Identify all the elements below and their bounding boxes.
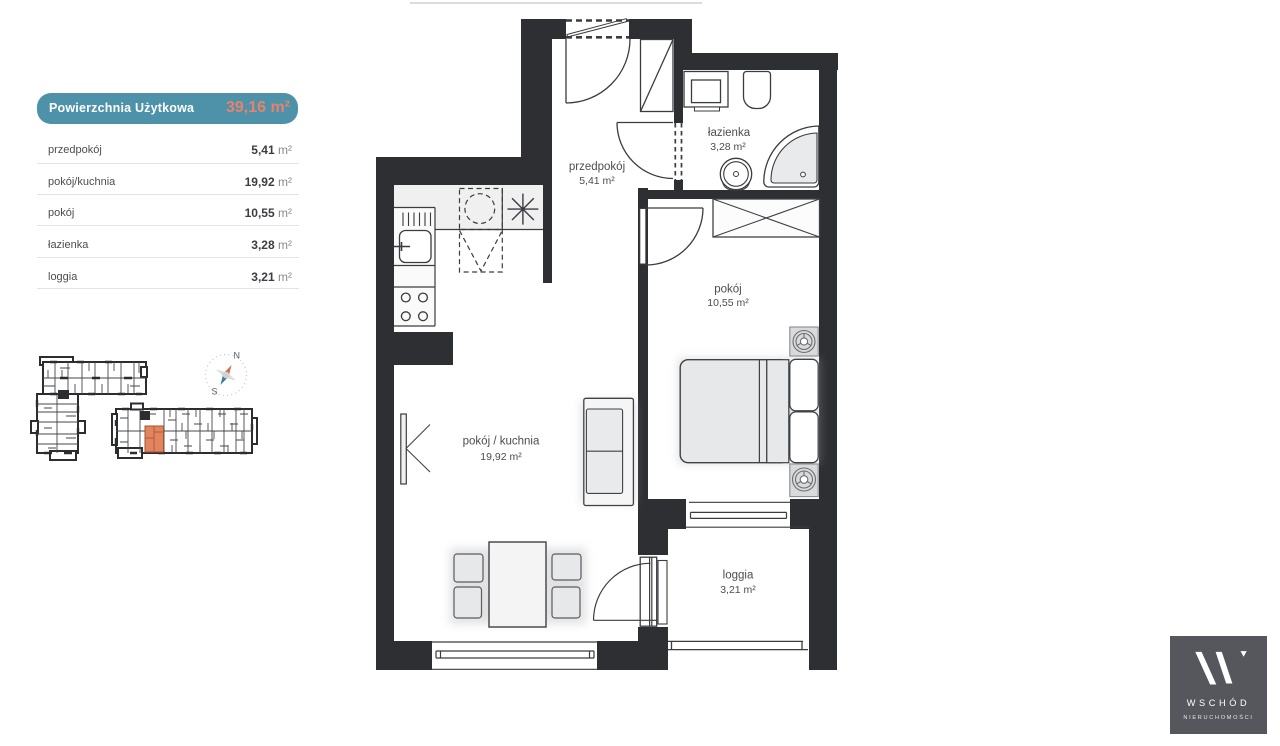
svg-text:S: S bbox=[212, 387, 218, 397]
svg-text:3,28 m²: 3,28 m² bbox=[710, 141, 746, 153]
svg-text:przedpokój: przedpokój bbox=[569, 161, 625, 173]
svg-text:10,55 m²: 10,55 m² bbox=[707, 297, 749, 309]
svg-text:łazienka: łazienka bbox=[708, 127, 751, 139]
svg-text:loggia: loggia bbox=[723, 570, 754, 582]
svg-text:19,92 m²: 19,92 m² bbox=[480, 451, 522, 463]
svg-text:3,21 m²: 3,21 m² bbox=[720, 584, 756, 596]
svg-text:WSCHÓD: WSCHÓD bbox=[1187, 698, 1250, 708]
svg-text:pokój: pokój bbox=[714, 284, 742, 296]
svg-text:5,41 m²: 5,41 m² bbox=[579, 175, 615, 187]
svg-text:N: N bbox=[234, 351, 241, 361]
svg-text:pokój / kuchnia: pokój / kuchnia bbox=[463, 436, 540, 448]
svg-text:NIERUCHOMOŚCI: NIERUCHOMOŚCI bbox=[1183, 713, 1253, 721]
